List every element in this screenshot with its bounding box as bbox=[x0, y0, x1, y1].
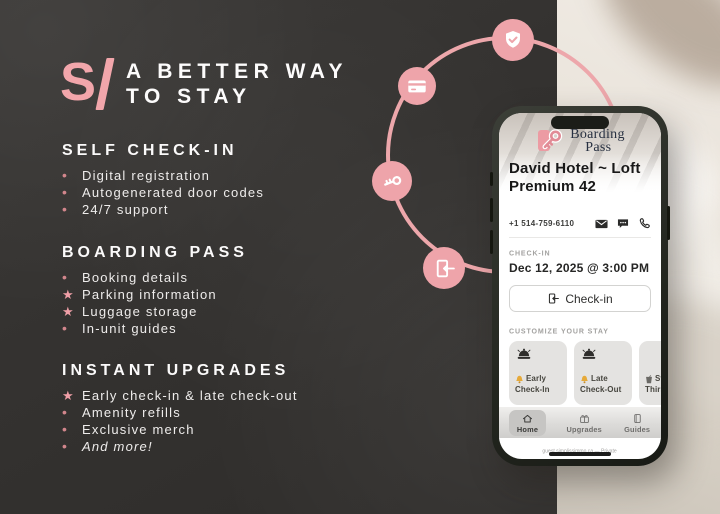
list-item: • Exclusive merch bbox=[62, 421, 392, 438]
mail-icon[interactable] bbox=[595, 219, 608, 229]
call-icon[interactable] bbox=[638, 217, 651, 230]
list-item: • Digital registration bbox=[62, 167, 392, 184]
dot-bullet-icon: • bbox=[62, 167, 82, 184]
credit-card-icon bbox=[406, 75, 428, 97]
power-button bbox=[667, 206, 670, 240]
checkin-datetime: Dec 12, 2025 @ 3:00 PM bbox=[509, 261, 649, 275]
dot-bullet-icon: • bbox=[62, 404, 82, 421]
list-item: • Amenity refills bbox=[62, 404, 392, 421]
dot-bullet-icon: • bbox=[62, 184, 82, 201]
si-logo-letter-i: I bbox=[96, 58, 115, 110]
service-bell-icon bbox=[580, 347, 598, 362]
phone-mockup: Boarding Pass David Hotel ~ Loft Premium… bbox=[492, 106, 668, 466]
dot-bullet-icon: • bbox=[62, 421, 82, 438]
boarding-pass-wordmark: Boarding Pass bbox=[570, 128, 625, 154]
card-early-check-in[interactable]: Early Check-In bbox=[509, 341, 567, 405]
star-bullet-icon: ★ bbox=[62, 387, 82, 404]
chat-icon[interactable] bbox=[617, 218, 629, 229]
star-bullet-icon: ★ bbox=[62, 303, 82, 320]
list-item: ★ Parking information bbox=[62, 286, 392, 303]
door-entry-icon bbox=[432, 256, 457, 281]
card-label: Late Check-Out bbox=[580, 374, 632, 395]
property-title: David Hotel ~ Loft Premium 42 bbox=[509, 160, 651, 195]
contact-row: +1 514-759-6110 bbox=[509, 217, 651, 230]
check-in-button[interactable]: Check-in bbox=[509, 285, 651, 312]
section-heading: BOARDING PASS bbox=[62, 244, 392, 262]
card-late-check-out[interactable]: Late Check-Out bbox=[574, 341, 632, 405]
nav-item-upgrades[interactable]: Upgrades bbox=[565, 412, 604, 434]
tagline-line-1: A BETTER WAY bbox=[126, 59, 348, 84]
si-logo-letter-s: S bbox=[60, 57, 96, 107]
section-self-check-in: SELF CHECK-IN • Digital registration • A… bbox=[62, 142, 392, 218]
list-item: • And more! bbox=[62, 438, 392, 455]
card-label: Still Thirsty bbox=[645, 374, 661, 395]
gift-icon bbox=[578, 412, 591, 425]
dot-bullet-icon: • bbox=[62, 438, 82, 455]
shield-check-icon bbox=[501, 28, 525, 52]
bell-emoji-icon bbox=[580, 375, 589, 384]
star-bullet-icon: ★ bbox=[62, 286, 82, 303]
tagline: A BETTER WAY TO STAY bbox=[126, 57, 348, 110]
phone-screen: Boarding Pass David Hotel ~ Loft Premium… bbox=[499, 113, 661, 459]
dot-bullet-icon: • bbox=[62, 201, 82, 218]
boarding-pass-logo: Boarding Pass bbox=[499, 126, 661, 156]
contact-actions bbox=[595, 217, 651, 230]
home-icon bbox=[521, 412, 534, 425]
contact-phone-number[interactable]: +1 514-759-6110 bbox=[509, 219, 574, 228]
credit-card-badge bbox=[398, 67, 436, 105]
phone-notch bbox=[551, 116, 609, 129]
section-heading: SELF CHECK-IN bbox=[62, 142, 392, 160]
card-label: Early Check-In bbox=[515, 374, 567, 395]
nav-item-guides[interactable]: Guides bbox=[623, 412, 651, 434]
list-item: • In-unit guides bbox=[62, 320, 392, 337]
nav-item-home[interactable]: Home bbox=[509, 410, 546, 436]
si-brand-logo: S I bbox=[60, 57, 109, 110]
list-item: • Booking details bbox=[62, 269, 392, 286]
section-heading: INSTANT UPGRADES bbox=[62, 362, 392, 380]
mute-switch bbox=[490, 172, 493, 186]
list-item: • 24/7 support bbox=[62, 201, 392, 218]
checkin-section-label: CHECK-IN bbox=[509, 250, 550, 258]
section-instant-upgrades: INSTANT UPGRADES ★ Early check-in & late… bbox=[62, 362, 392, 455]
boarding-pass-logo-icon bbox=[535, 126, 565, 156]
book-icon bbox=[631, 412, 644, 425]
divider bbox=[509, 237, 651, 238]
promo-banner: S I A BETTER WAY TO STAY SELF CHECK-IN •… bbox=[0, 0, 720, 514]
door-enter-icon bbox=[547, 292, 560, 305]
icon-spacer bbox=[645, 347, 661, 362]
drink-emoji-icon bbox=[645, 375, 653, 384]
customize-section-label: CUSTOMIZE YOUR STAY bbox=[509, 328, 609, 336]
shield-check-badge bbox=[492, 19, 534, 61]
volume-down-button bbox=[490, 230, 493, 254]
dot-bullet-icon: • bbox=[62, 320, 82, 337]
section-boarding-pass: BOARDING PASS • Booking details ★ Parkin… bbox=[62, 244, 392, 337]
list-item: ★ Luggage storage bbox=[62, 303, 392, 320]
card-still-thirsty[interactable]: Still Thirsty bbox=[639, 341, 661, 405]
dot-bullet-icon: • bbox=[62, 269, 82, 286]
door-entry-badge bbox=[423, 247, 465, 289]
tagline-line-2: TO STAY bbox=[126, 84, 348, 109]
customize-cards-row: Early Check-In bbox=[509, 341, 661, 405]
list-item: • Autogenerated door codes bbox=[62, 184, 392, 201]
service-bell-icon bbox=[515, 347, 533, 362]
bottom-navbar: Home Upgrades Guides bbox=[499, 407, 661, 438]
volume-up-button bbox=[490, 198, 493, 222]
bell-emoji-icon bbox=[515, 375, 524, 384]
check-in-button-label: Check-in bbox=[565, 292, 612, 306]
list-item: ★ Early check-in & late check-out bbox=[62, 387, 392, 404]
hero-header: S I A BETTER WAY TO STAY bbox=[60, 57, 348, 110]
home-indicator[interactable] bbox=[549, 452, 611, 456]
